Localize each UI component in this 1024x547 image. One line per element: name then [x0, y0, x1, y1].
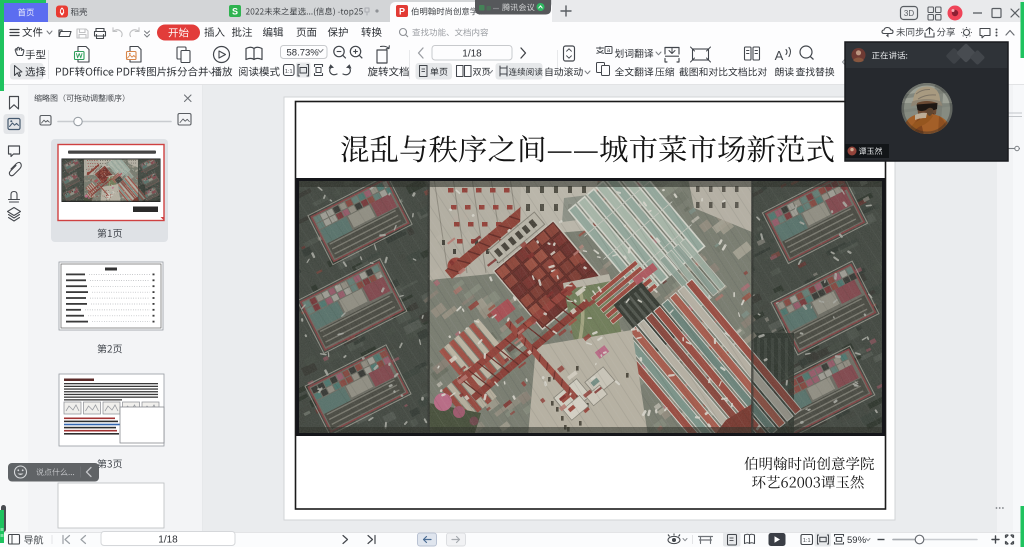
svg-text:P: P — [399, 7, 405, 17]
svg-text:1:1: 1:1 — [803, 538, 811, 544]
svg-text:3D: 3D — [904, 9, 914, 18]
svg-text:1/18: 1/18 — [158, 535, 178, 546]
svg-text:A: A — [775, 48, 784, 63]
svg-text:59%: 59% — [847, 535, 867, 546]
svg-text:1/18: 1/18 — [462, 49, 482, 60]
svg-text:1:1: 1:1 — [285, 69, 293, 75]
svg-text:S: S — [232, 7, 238, 17]
svg-text:58.73%: 58.73% — [287, 48, 320, 59]
